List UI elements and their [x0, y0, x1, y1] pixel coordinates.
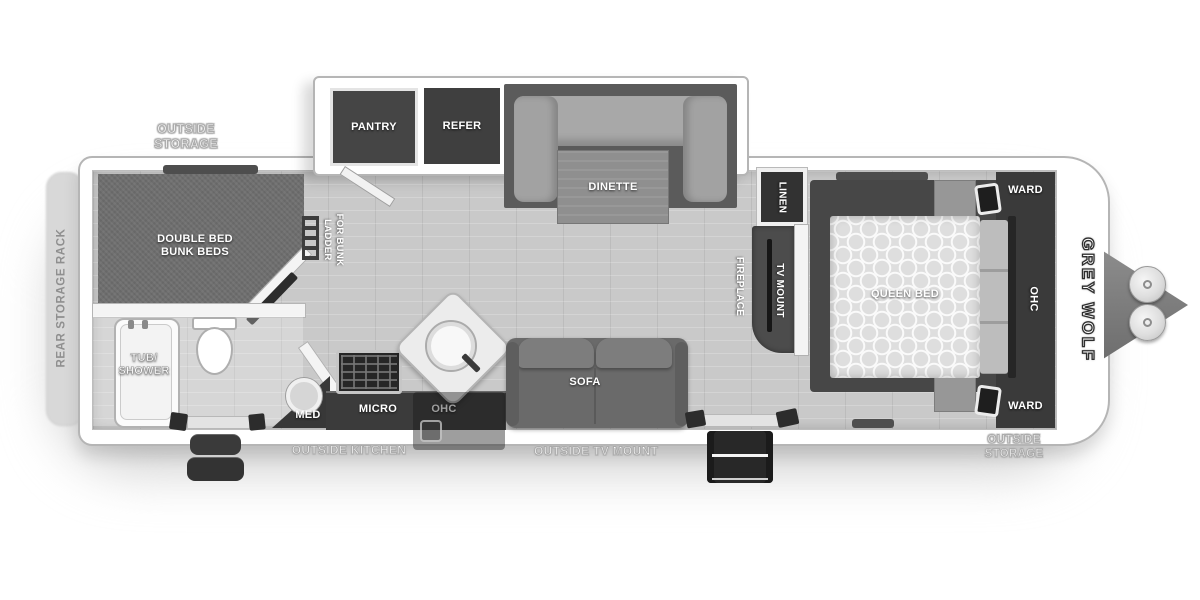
linen-label: LINEN	[777, 181, 788, 213]
sofa-label: SOFA	[550, 376, 620, 388]
ward-top-label: WARD	[996, 184, 1055, 196]
bunk-room-label: DOUBLE BED BUNK BEDS	[115, 233, 275, 258]
window-icon	[163, 165, 258, 174]
floorplan-stage: REAR STORAGE RACK PANTRY REFER DINETTE D…	[0, 0, 1200, 600]
dinette-bench-right	[683, 96, 727, 202]
entry-steps	[187, 434, 244, 480]
propane-tank-icon	[1129, 304, 1166, 341]
pantry-cabinet: PANTRY	[330, 88, 418, 166]
entry-steps	[707, 431, 773, 483]
outside-storage-rear-label: OUTSIDE STORAGE	[136, 122, 236, 152]
pillow-area	[980, 220, 1008, 374]
ladder-label: LADDER FOR BUNK	[316, 208, 350, 272]
micro-label: MICRO	[348, 403, 408, 415]
door-jamb	[248, 413, 266, 431]
linen-closet: LINEN	[757, 168, 807, 226]
refrigerator: REFER	[424, 88, 500, 164]
outside-kitchen-label: OUTSIDE KITCHEN	[288, 443, 410, 457]
sofa-back-cushion	[596, 338, 672, 368]
outside-storage-front-label: OUTSIDE STORAGE	[974, 434, 1054, 462]
corner-shelf	[934, 180, 976, 218]
med-label: MED	[288, 409, 328, 421]
tv-icon	[974, 182, 1002, 215]
dinette-label: DINETTE	[588, 181, 637, 193]
entry-door-threshold	[701, 414, 779, 427]
tub-shower-label: TUB/ SHOWER	[100, 352, 188, 377]
window-icon	[852, 419, 894, 428]
dinette-bench-left	[514, 96, 558, 202]
ohc-bedroom-label: OHC	[1014, 268, 1054, 330]
queen-bed-label: QUEEN BED	[853, 288, 957, 300]
tub-faucet-icon	[142, 320, 148, 329]
fireplace-label: FIREPLACE	[726, 240, 754, 332]
outside-tv-mount-label: OUTSIDE TV MOUNT	[534, 444, 656, 458]
tv-mount-living-label: TV MOUNT	[765, 242, 793, 338]
tv-icon	[974, 384, 1002, 417]
range-grate-icon	[341, 355, 397, 389]
dinette-table: DINETTE	[557, 150, 669, 224]
refer-label: REFER	[443, 120, 482, 132]
tub-faucet-icon	[128, 320, 134, 329]
sofa-armrest	[506, 342, 519, 426]
propane-tank-icon	[1129, 266, 1166, 303]
door-jamb	[169, 412, 188, 431]
corner-shelf	[934, 374, 976, 412]
entry-door-threshold	[187, 416, 250, 429]
door-jamb	[685, 409, 706, 428]
sofa-back-cushion	[518, 338, 594, 368]
compartment-handle-icon	[420, 420, 442, 442]
ward-bottom-label: WARD	[996, 400, 1055, 412]
brand-logo: GREY WOLF	[1068, 202, 1108, 398]
pantry-label: PANTRY	[351, 121, 397, 133]
